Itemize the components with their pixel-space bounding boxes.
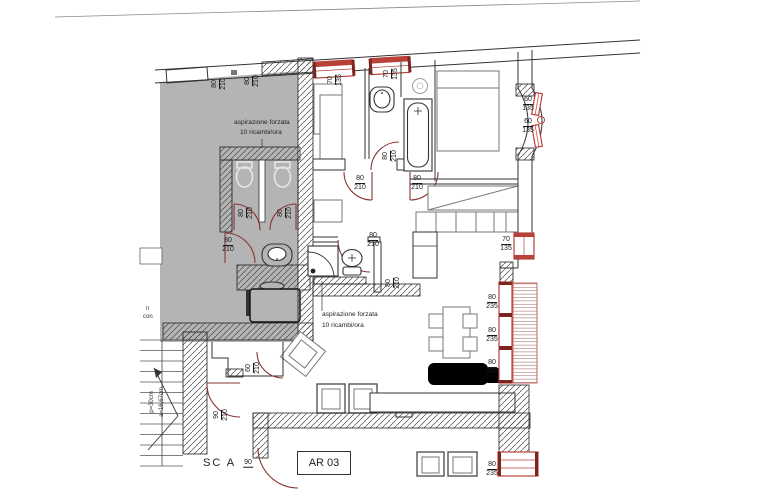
stair-riser-note: a=16,67cm	[159, 387, 165, 417]
dimension-label: 90	[243, 459, 253, 468]
wall	[220, 147, 300, 160]
dimension-label: 80210	[211, 78, 227, 90]
dimension-label: 80210	[222, 237, 234, 253]
vent-note-bath2-line2: 10 ricambi/ora	[322, 322, 364, 329]
dimension-label: 90210	[213, 409, 229, 421]
bathroom2	[308, 237, 420, 311]
party-wall	[298, 58, 313, 342]
wall	[183, 332, 207, 454]
dimension-label: 70135	[500, 236, 512, 252]
right-wall	[498, 50, 545, 476]
armchair	[448, 452, 477, 476]
hall-cabinet	[314, 200, 342, 222]
wall	[253, 413, 530, 428]
edge-text-fragment: con	[143, 314, 153, 320]
wall	[499, 385, 529, 452]
dimension-label: 80235	[486, 359, 498, 375]
dimension-label: 80235	[486, 327, 498, 343]
wall-box	[231, 70, 237, 75]
vent-note-top-line2: 10 ricambi/ora	[240, 129, 282, 136]
floor-plan-canvas: aspirazione forzata 10 ricambi/ora aspir…	[0, 0, 764, 492]
window-icon	[498, 452, 538, 476]
bedroom1	[314, 68, 369, 222]
edge-text-fragment: n	[146, 306, 149, 312]
washing-machine-icon	[413, 79, 428, 94]
shutter-panel	[513, 283, 537, 383]
dining-table	[429, 307, 477, 358]
dimension-label: 80210	[382, 150, 398, 162]
bathroom1	[370, 62, 432, 171]
wall	[313, 284, 420, 296]
kitchen-counter	[416, 212, 518, 232]
corner-shower-icon	[308, 246, 338, 276]
sink-icon	[262, 244, 292, 266]
stair-tread-note: p=30cm	[149, 391, 155, 413]
armchair	[317, 384, 345, 413]
dimension-label: 80210	[385, 277, 401, 289]
french-window-icon	[499, 282, 537, 383]
armchair	[417, 452, 444, 476]
dimension-label: 70135	[383, 68, 399, 80]
stair-name-label: SC A	[203, 457, 236, 469]
wall-niche	[140, 248, 162, 264]
room-code-box: AR 03	[297, 451, 351, 475]
wardrobe	[428, 186, 518, 210]
floor-plan-drawing	[0, 0, 764, 492]
dimension-label: 60210	[245, 362, 261, 374]
wall	[253, 413, 268, 458]
room-code-label: AR 03	[309, 457, 340, 469]
adjacent-unit	[140, 67, 313, 342]
dimension-label: 80235	[486, 461, 498, 477]
dimension-label: 80210	[367, 232, 379, 248]
bed	[437, 71, 499, 151]
dimension-label: 80235	[486, 294, 498, 310]
window-icon	[514, 233, 534, 259]
vent-note-bath2-line1: aspirazione forzata	[322, 311, 378, 318]
dimension-label: 80210	[411, 175, 423, 191]
top-wall	[55, 1, 640, 83]
dimension-label: 70135	[327, 74, 343, 86]
bathtub-icon	[404, 99, 432, 171]
dimension-label: 80210	[354, 175, 366, 191]
column-marker	[538, 117, 545, 124]
dimension-label: 60135	[522, 96, 534, 112]
wardrobe	[320, 95, 342, 159]
sink-icon	[370, 87, 394, 112]
dimension-label: 80210	[277, 207, 293, 219]
wc-partition	[259, 160, 265, 222]
vent-note-top-line1: aspirazione forzata	[234, 119, 290, 126]
dimension-label: 80210	[238, 207, 254, 219]
dimension-label: 60135	[522, 118, 534, 134]
dimension-label: 80210	[244, 75, 260, 87]
toilet-icon	[342, 250, 362, 276]
wall	[220, 160, 232, 232]
shelf	[226, 369, 243, 377]
tall-unit	[413, 232, 437, 278]
sideboard	[370, 393, 515, 412]
